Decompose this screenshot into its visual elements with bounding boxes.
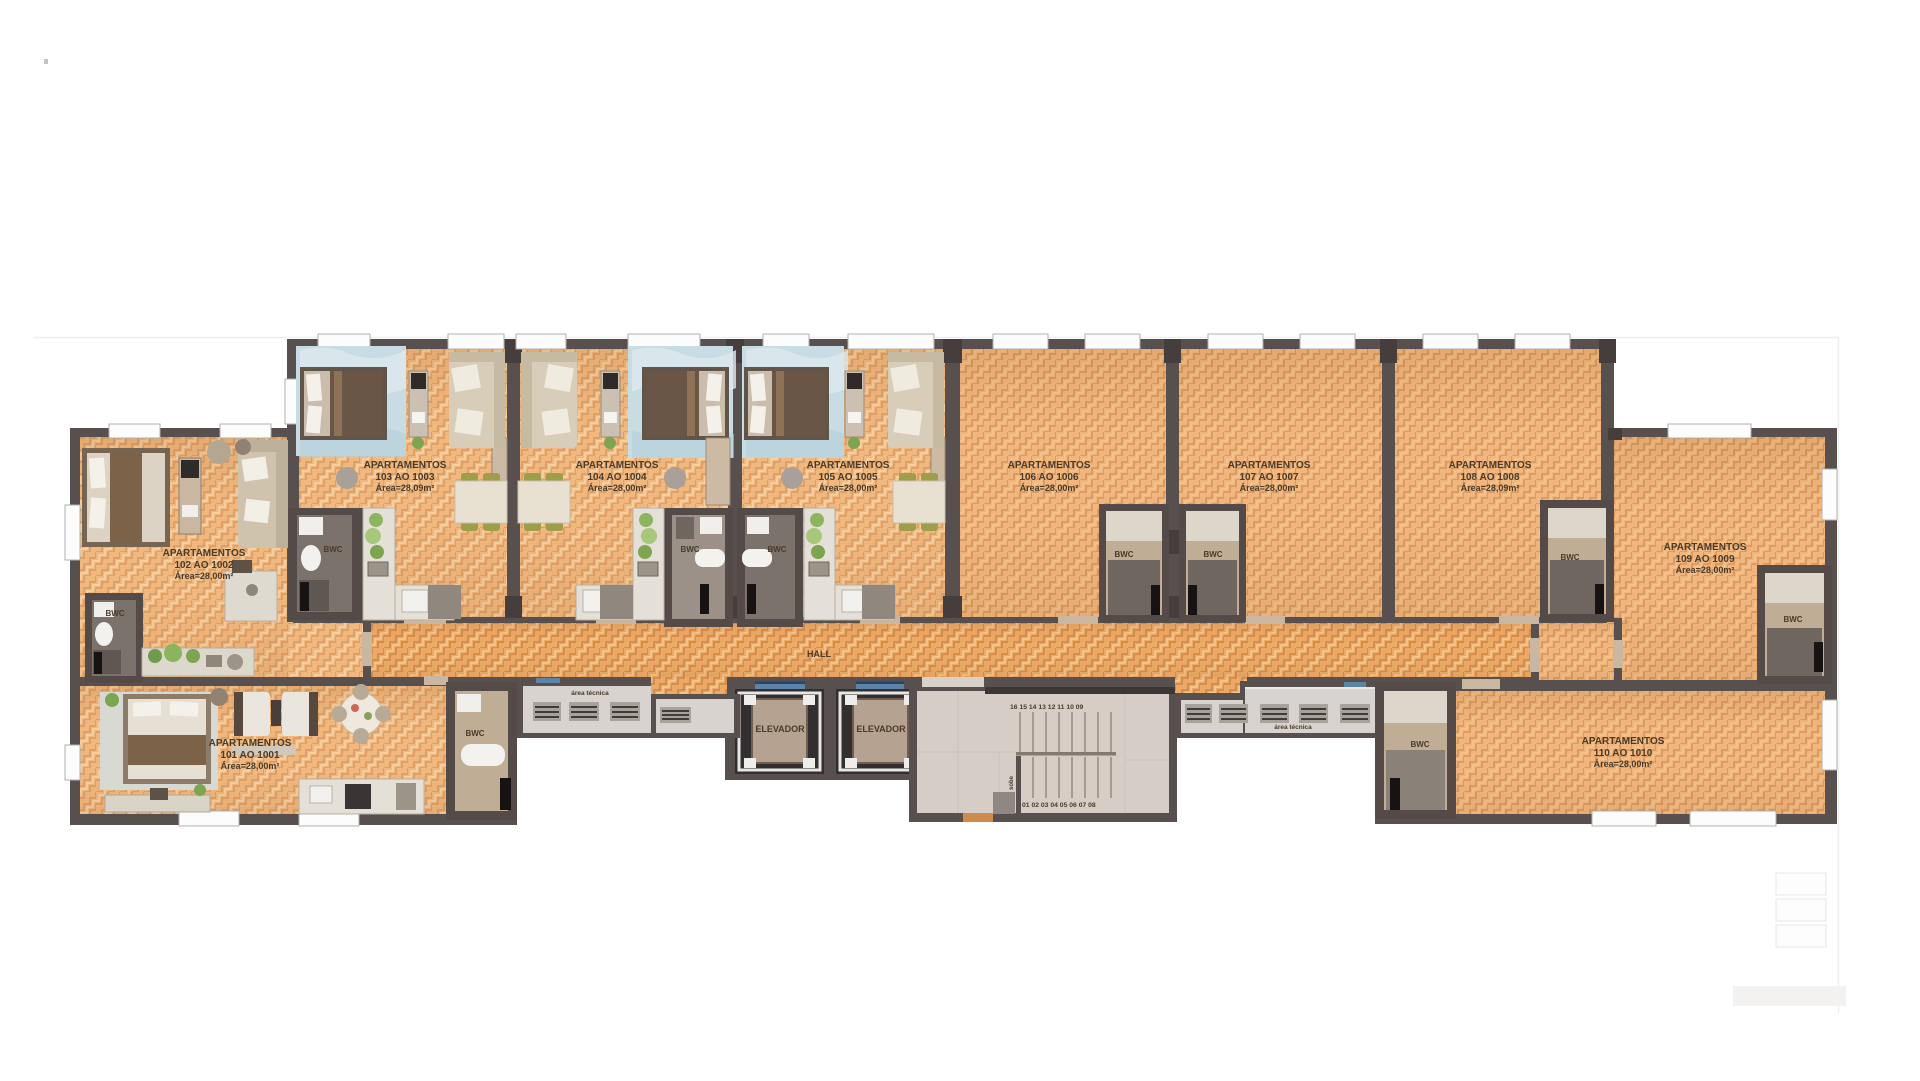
svg-text:Área=28,00m²: Área=28,00m² [1020, 483, 1079, 493]
svg-text:BWC: BWC [1203, 550, 1222, 559]
svg-text:01 02 03 04 05 06 07 08: 01 02 03 04 05 06 07 08 [1022, 802, 1096, 809]
svg-text:área técnica: área técnica [571, 690, 609, 697]
svg-text:BWC: BWC [1114, 550, 1133, 559]
svg-text:ELEVADOR: ELEVADOR [856, 724, 906, 734]
svg-text:BWC: BWC [465, 729, 484, 738]
svg-text:Área=28,00m²: Área=28,00m² [175, 571, 234, 581]
svg-text:Área=28,00m²: Área=28,00m² [588, 483, 647, 493]
svg-text:BWC: BWC [680, 545, 699, 554]
svg-text:Área=28,00m²: Área=28,00m² [1676, 565, 1735, 575]
svg-text:APARTAMENTOS: APARTAMENTOS [1008, 460, 1091, 471]
svg-text:Área=28,09m²: Área=28,09m² [1461, 483, 1520, 493]
svg-text:104 AO 1004: 104 AO 1004 [587, 472, 647, 483]
svg-text:BWC: BWC [105, 609, 124, 618]
svg-text:APARTAMENTOS: APARTAMENTOS [1664, 542, 1747, 553]
svg-text:Área=28,00m²: Área=28,00m² [221, 761, 280, 771]
svg-text:110 AO 1010: 110 AO 1010 [1594, 748, 1653, 759]
svg-text:APARTAMENTOS: APARTAMENTOS [576, 460, 659, 471]
svg-text:APARTAMENTOS: APARTAMENTOS [1582, 736, 1665, 747]
svg-text:APARTAMENTOS: APARTAMENTOS [209, 738, 292, 749]
svg-text:BWC: BWC [1783, 615, 1802, 624]
svg-text:APARTAMENTOS: APARTAMENTOS [163, 548, 246, 559]
svg-text:107 AO 1007: 107 AO 1007 [1239, 472, 1299, 483]
svg-text:BWC: BWC [323, 545, 342, 554]
svg-text:102 AO 1002: 102 AO 1002 [174, 560, 234, 571]
svg-text:105 AO 1005: 105 AO 1005 [818, 472, 878, 483]
svg-text:16 15 14 13 12 11 10 09: 16 15 14 13 12 11 10 09 [1010, 704, 1084, 711]
svg-text:APARTAMENTOS: APARTAMENTOS [1449, 460, 1532, 471]
svg-text:109 AO 1009: 109 AO 1009 [1675, 554, 1735, 565]
svg-text:ELEVADOR: ELEVADOR [755, 724, 805, 734]
svg-text:APARTAMENTOS: APARTAMENTOS [807, 460, 890, 471]
svg-text:APARTAMENTOS: APARTAMENTOS [1228, 460, 1311, 471]
svg-text:Área=28,00m²: Área=28,00m² [819, 483, 878, 493]
svg-text:101 AO 1001: 101 AO 1001 [220, 750, 280, 761]
svg-text:103 AO 1003: 103 AO 1003 [375, 472, 435, 483]
svg-text:Área=28,00m²: Área=28,00m² [1240, 483, 1299, 493]
svg-text:BWC: BWC [1410, 740, 1429, 749]
svg-text:Área=28,00m²: Área=28,00m² [1594, 759, 1653, 769]
svg-text:106 AO 1006: 106 AO 1006 [1019, 472, 1079, 483]
svg-text:BWC: BWC [767, 545, 786, 554]
svg-text:HALL: HALL [807, 649, 831, 659]
svg-text:108 AO 1008: 108 AO 1008 [1460, 472, 1520, 483]
svg-text:sobe: sobe [1009, 775, 1015, 790]
svg-text:APARTAMENTOS: APARTAMENTOS [364, 460, 447, 471]
svg-text:Área=28,09m²: Área=28,09m² [376, 483, 435, 493]
svg-text:área técnica: área técnica [1274, 724, 1312, 731]
svg-text:BWC: BWC [1560, 553, 1579, 562]
